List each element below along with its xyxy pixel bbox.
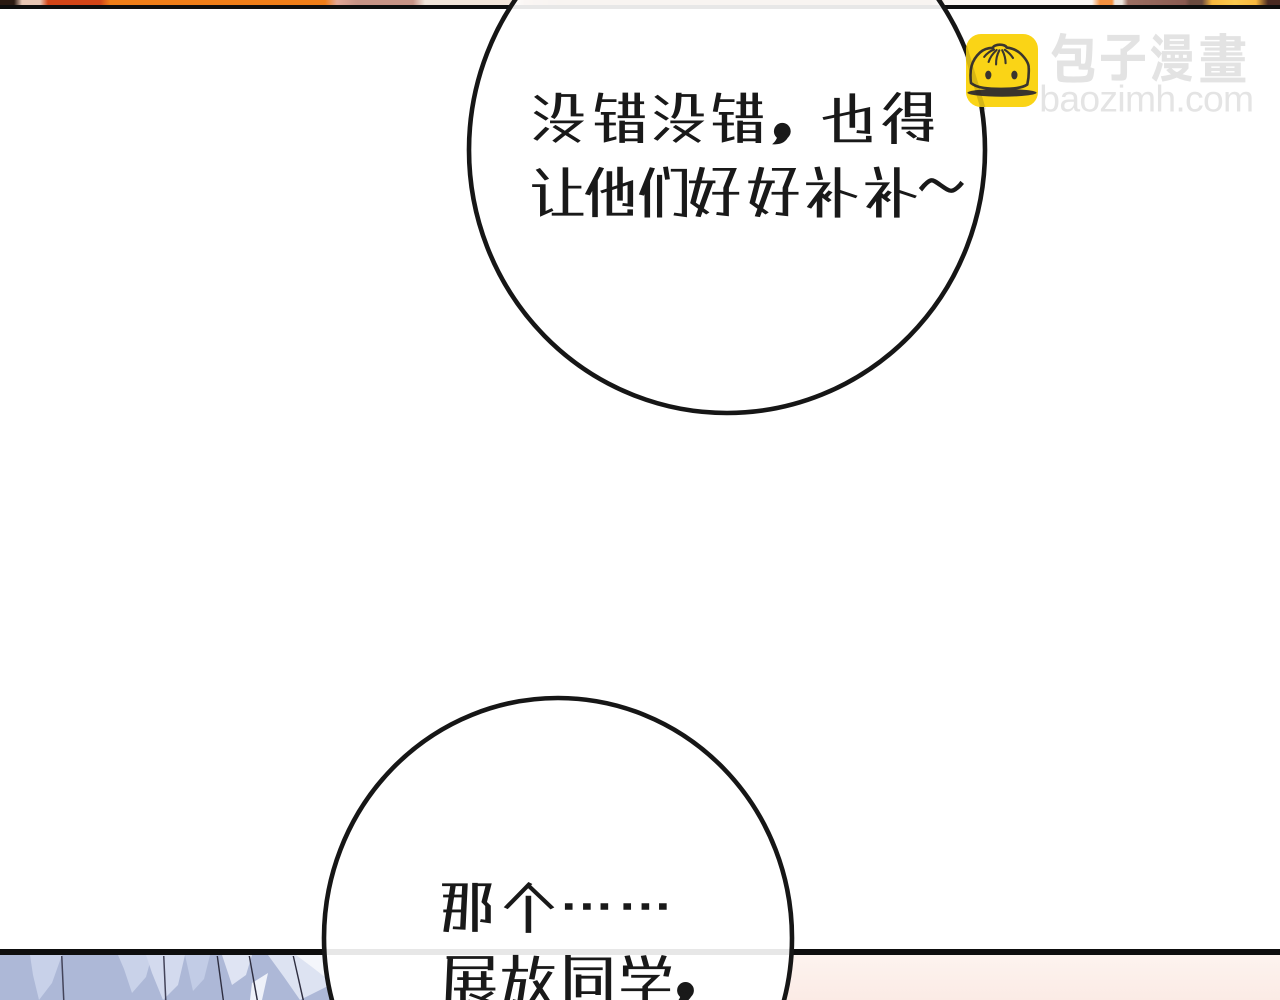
- svg-text:baozimh.com: baozimh.com: [1039, 78, 1253, 120]
